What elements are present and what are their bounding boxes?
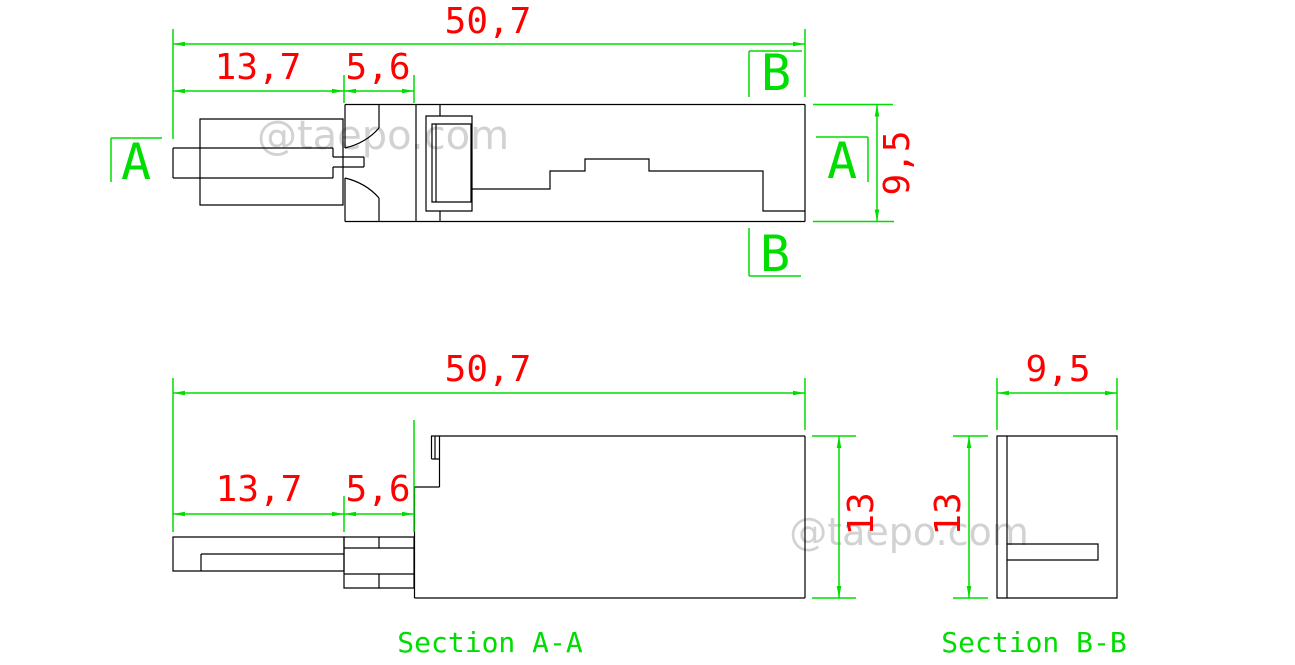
top-view-dim-plug-length: 13,7 [215,50,302,86]
section-aa-dim-height: 13 [844,492,880,535]
section-bb-title: Section B-B [941,629,1126,657]
section-aa-dim-plug-length: 13,7 [216,472,303,508]
top-view-dim-total-width: 50,7 [445,4,532,40]
top-view-geometry [173,105,805,222]
top-view-dim-height: 9,5 [880,130,916,195]
section-marker-b-bottom: B [760,229,790,279]
cad-line-art [0,0,1295,665]
section-bb-geometry [997,436,1117,598]
section-marker-a-left: A [121,137,151,187]
section-aa-dim-mid-length: 5,6 [345,472,410,508]
section-aa-title: Section A-A [397,629,582,657]
section-marker-b-top: B [761,48,791,98]
cad-drawing-page: @taepo.com @taepo.com [0,0,1295,665]
extension-lines [173,29,1117,598]
section-marker-a-right: A [827,136,857,186]
section-bb-dim-height: 13 [931,492,967,535]
section-bb-dim-width: 9,5 [1025,352,1090,388]
top-view-dim-mid-length: 5,6 [345,50,410,86]
dimension-lines [173,44,1117,598]
section-aa-dim-total-width: 50,7 [445,352,532,388]
section-aa-geometry [173,436,805,598]
